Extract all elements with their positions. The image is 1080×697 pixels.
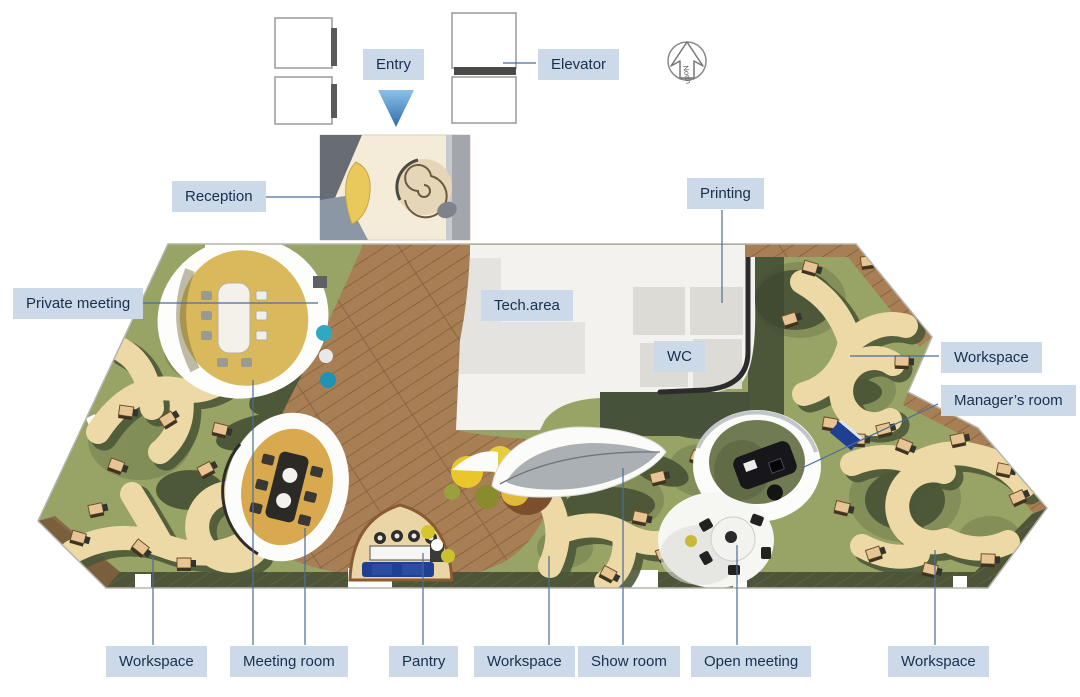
- label-pantry: Pantry: [389, 646, 458, 677]
- label-printing: Printing: [687, 178, 764, 209]
- label-workspace-bottom-center: Workspace: [474, 646, 575, 677]
- label-wc: WC: [654, 341, 705, 372]
- elevator-door: [454, 67, 516, 75]
- entry-arrow-icon: [378, 90, 414, 127]
- label-managers-room: Manager’s room: [941, 385, 1076, 416]
- reception-area: [320, 135, 470, 240]
- label-workspace-bottom-left: Workspace: [106, 646, 207, 677]
- conference-table: [218, 283, 250, 353]
- north-label: North: [681, 65, 693, 85]
- label-elevator: Elevator: [538, 49, 619, 80]
- floor-plan-figure: North: [0, 0, 1080, 697]
- label-reception: Reception: [172, 181, 266, 212]
- lounge-chair-teal: [316, 325, 332, 341]
- north-arrow-icon: North: [668, 42, 706, 84]
- pantry-table: [370, 546, 440, 560]
- label-meeting-room: Meeting room: [230, 646, 348, 677]
- label-private-meeting: Private meeting: [13, 288, 143, 319]
- label-open-meeting: Open meeting: [691, 646, 811, 677]
- printing-area: [690, 287, 743, 335]
- label-tech-area: Tech.area: [481, 290, 573, 321]
- label-workspace-bottom-right: Workspace: [888, 646, 989, 677]
- label-show-room: Show room: [578, 646, 680, 677]
- floor-plan-canvas: North: [0, 0, 1080, 697]
- label-entry: Entry: [363, 49, 424, 80]
- label-workspace-right: Workspace: [941, 342, 1042, 373]
